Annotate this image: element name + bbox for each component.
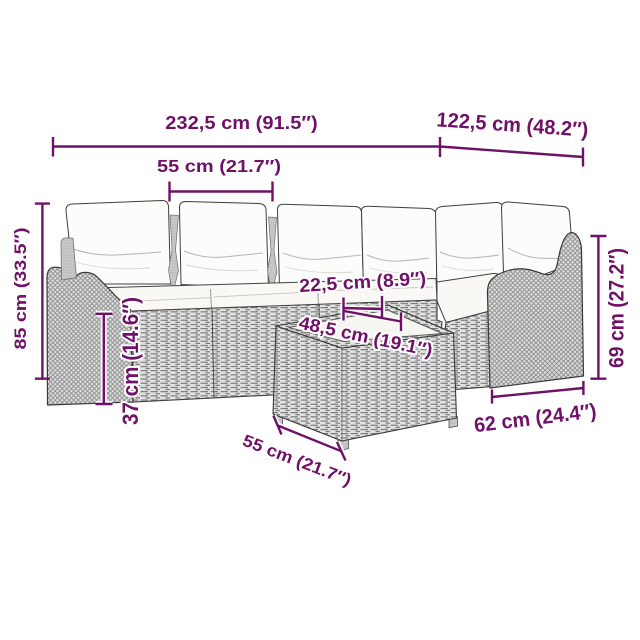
svg-text:69 cm (27.2″): 69 cm (27.2″) [605, 248, 629, 368]
svg-text:55 cm (21.7″): 55 cm (21.7″) [157, 156, 281, 176]
svg-text:232,5 cm (91.5″): 232,5 cm (91.5″) [165, 113, 318, 133]
svg-text:85 cm (33.5″): 85 cm (33.5″) [11, 228, 30, 350]
svg-text:37 cm (14.6″): 37 cm (14.6″) [118, 297, 143, 425]
